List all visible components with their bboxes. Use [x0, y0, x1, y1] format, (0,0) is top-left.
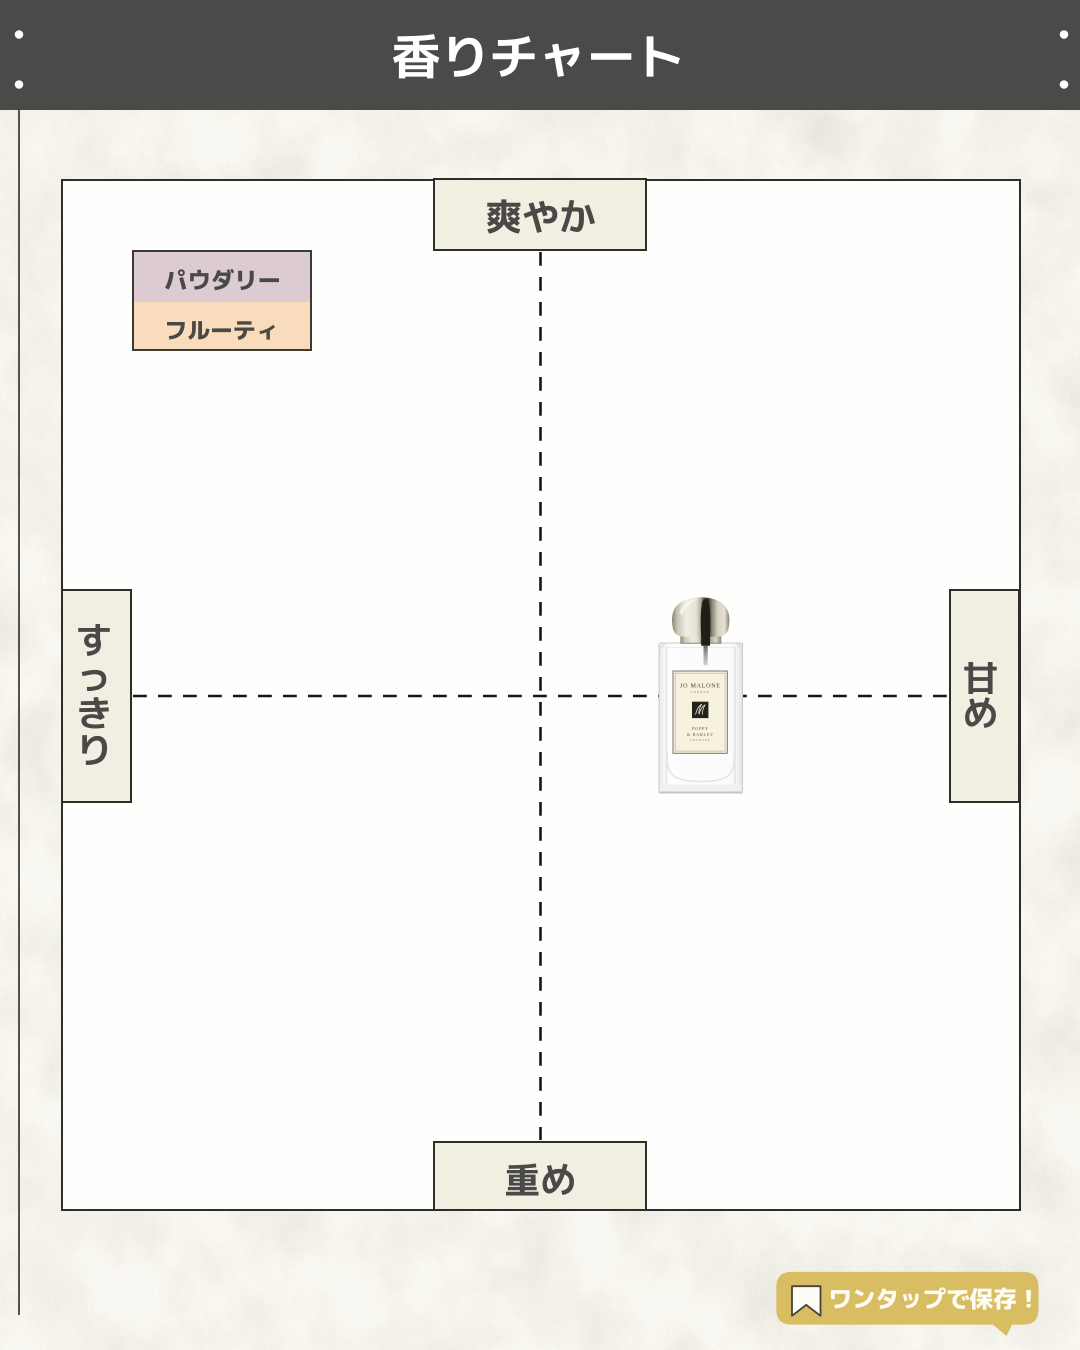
- svg-text:COLOGNE: COLOGNE: [690, 738, 710, 742]
- svg-text:LONDON: LONDON: [691, 690, 710, 694]
- svg-text:POPPY: POPPY: [692, 726, 709, 731]
- svg-text:JO MALONE: JO MALONE: [680, 683, 721, 689]
- svg-text:& BARLEY: & BARLEY: [687, 732, 714, 737]
